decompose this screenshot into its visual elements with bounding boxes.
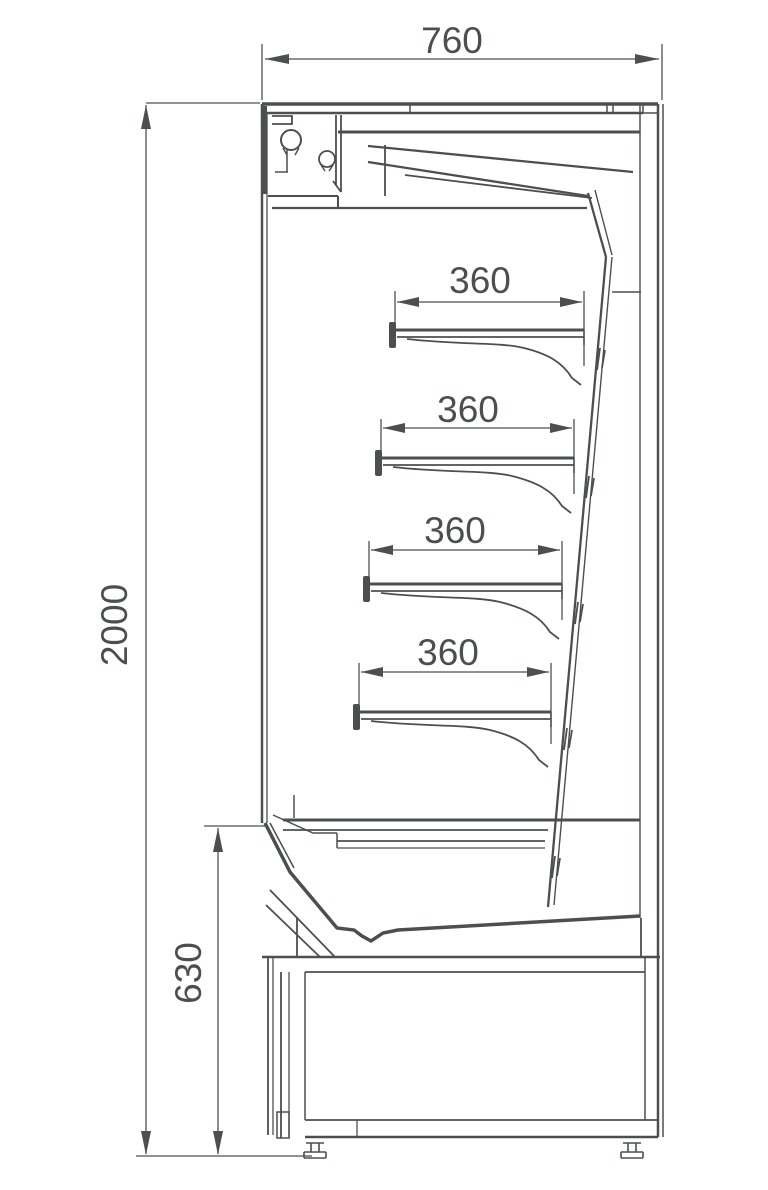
arrow-s3-right bbox=[538, 545, 560, 555]
back-panel-outer bbox=[548, 257, 606, 907]
shelf-3-front-lip bbox=[363, 576, 370, 602]
foot-right bbox=[621, 1137, 643, 1158]
hanger-bracket-1 bbox=[333, 115, 341, 192]
dim-label-width-760: 760 bbox=[421, 20, 483, 61]
dimension-labels-group: 7602000630360360360360 bbox=[94, 20, 511, 1004]
arrow-s3-left bbox=[371, 545, 393, 555]
arrow-630-down bbox=[213, 1131, 223, 1155]
shelf-1-front-lip bbox=[389, 322, 396, 348]
back-top-outer bbox=[588, 193, 606, 257]
foot-left bbox=[304, 1137, 326, 1158]
canopy-front-step bbox=[268, 196, 338, 208]
arrow-630-up bbox=[213, 828, 223, 852]
arrow-s2-left bbox=[383, 423, 405, 433]
shelf-2-bracket bbox=[393, 467, 571, 513]
duct-slant-mid bbox=[368, 162, 588, 196]
shelf-1-bracket bbox=[407, 339, 581, 385]
dim-label-height-2000: 2000 bbox=[94, 584, 135, 666]
arrow-760-right bbox=[635, 54, 659, 64]
arrow-s1-left bbox=[397, 297, 419, 307]
dim-label-shelf2-360: 360 bbox=[437, 389, 499, 430]
shelf-2-front-lip bbox=[375, 450, 382, 476]
arrow-s1-right bbox=[560, 297, 582, 307]
base-kick-detail bbox=[277, 1112, 289, 1138]
arrow-760-left bbox=[265, 54, 289, 64]
canopy-roller-small bbox=[319, 151, 335, 167]
duct-slant-lower bbox=[405, 175, 592, 198]
dim-label-shelf4-360: 360 bbox=[417, 632, 479, 673]
arrow-s4-right bbox=[527, 667, 549, 677]
technical-drawing: 7602000630360360360360 bbox=[0, 0, 768, 1190]
dim-label-base-630: 630 bbox=[168, 942, 209, 1004]
dim-label-shelf1-360: 360 bbox=[449, 260, 511, 301]
arrow-s2-right bbox=[550, 423, 572, 433]
canopy-roller-large bbox=[281, 130, 301, 150]
shelf-4-front-lip bbox=[353, 704, 360, 730]
cabinet-section-group bbox=[136, 44, 663, 1158]
back-panel-inner bbox=[554, 257, 612, 905]
canopy-top-bracket bbox=[272, 116, 292, 124]
shelf-4-bracket bbox=[371, 721, 548, 767]
base-front-brace bbox=[266, 890, 335, 957]
arrow-s4-left bbox=[361, 667, 383, 677]
arrow-2000-up bbox=[141, 105, 151, 129]
dim-label-shelf3-360: 360 bbox=[424, 510, 486, 551]
drawing-page: 7602000630360360360360 bbox=[0, 0, 768, 1190]
arrow-2000-down bbox=[141, 1131, 151, 1155]
